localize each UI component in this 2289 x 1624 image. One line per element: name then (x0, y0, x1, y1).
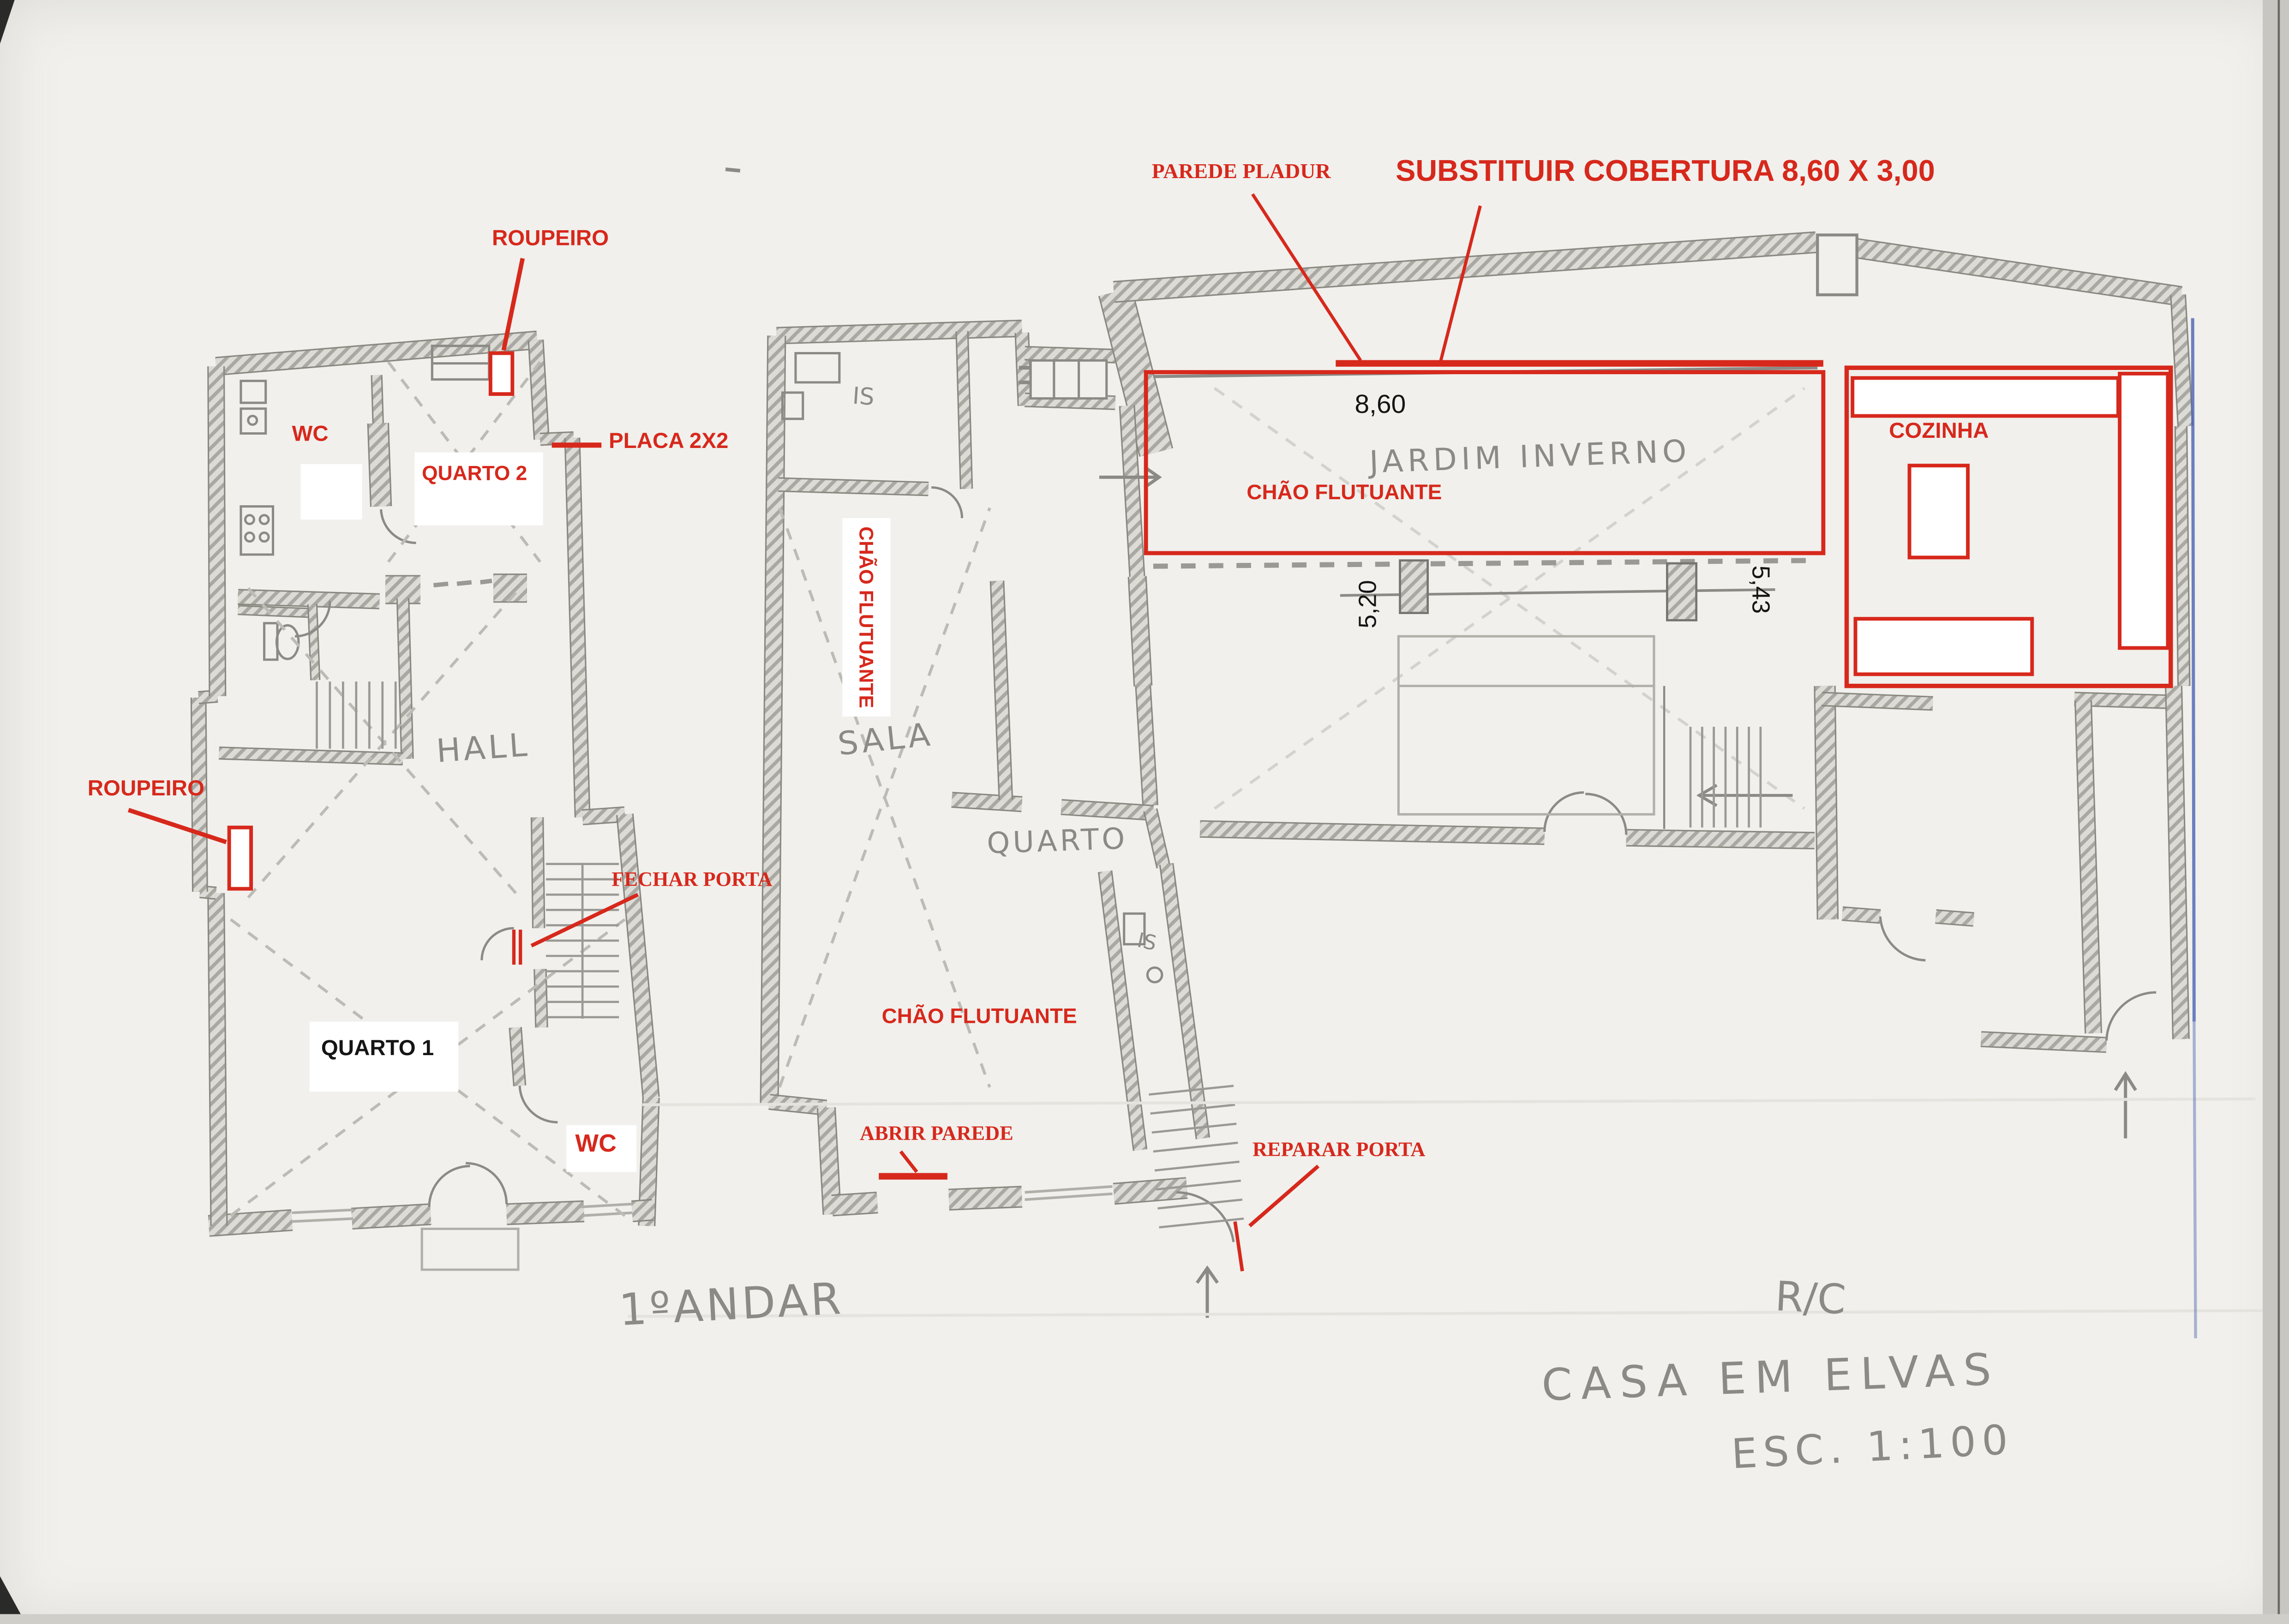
roupeiro-top-label: ROUPEIRO (492, 227, 609, 249)
quarto1-label: QUARTO 1 (321, 1038, 434, 1059)
dimension-5-20: 5,20 (1355, 580, 1380, 628)
cozinha-layout (1847, 368, 2171, 686)
abrir-parede-label: ABRIR PAREDE (860, 1125, 1013, 1146)
blue-pen-line (2193, 318, 2194, 1022)
abrir-parede-leader (901, 1152, 917, 1172)
dimension-5-43: 5,43 (1748, 566, 1773, 614)
floor-title-1andar: 1ºANDAR (618, 1278, 845, 1334)
roupeiro-left-label: ROUPEIRO (88, 778, 204, 800)
roupeiro-left-leader (128, 810, 226, 842)
wc-upper-label: WC (292, 423, 329, 445)
wc-lower-label: WC (575, 1131, 617, 1156)
parede-pladur-label: PAREDE PLADUR (1152, 162, 1331, 183)
quarto-mid-label: QUARTO (986, 824, 1128, 858)
substituir-leader (1441, 206, 1480, 360)
floor-title-rc: R/C (1774, 1277, 1847, 1321)
reparar-porta-leader (1250, 1166, 1318, 1226)
chao-flutuante-vertical-label: CHÃO FLUTUANTE (856, 526, 875, 708)
blue-pen-line-lower (2194, 1021, 2195, 1338)
cozinha-label: COZINHA (1889, 420, 1989, 442)
roupeiro-left-box (229, 828, 251, 889)
fechar-porta-marks (514, 930, 520, 965)
quarto2-label: QUARTO 2 (422, 463, 527, 483)
reparar-porta-mark (1235, 1222, 1242, 1272)
hall-label: HALL (436, 731, 531, 770)
is-top-label: IS (852, 385, 875, 410)
substituir-cobertura-label: SUBSTITUIR COBERTURA 8,60 X 3,00 (1396, 158, 1935, 188)
chao-flutuante-upper-label: CHÃO FLUTUANTE (1246, 483, 1442, 504)
roupeiro-top-box (491, 353, 512, 394)
chao-flutuante-lower-label: CHÃO FLUTUANTE (882, 1007, 1077, 1028)
dimension-8-60: 8,60 (1355, 391, 1406, 418)
scanned-floor-plan-sheet: ROUPEIRO ROUPEIRO WC QUARTO 2 PLACA 2X2 … (0, 0, 2289, 1624)
fechar-porta-label: FECHAR PORTA (611, 871, 772, 891)
placa-label: PLACA 2X2 (609, 430, 728, 452)
reparar-porta-label: REPARAR PORTA (1252, 1141, 1425, 1162)
